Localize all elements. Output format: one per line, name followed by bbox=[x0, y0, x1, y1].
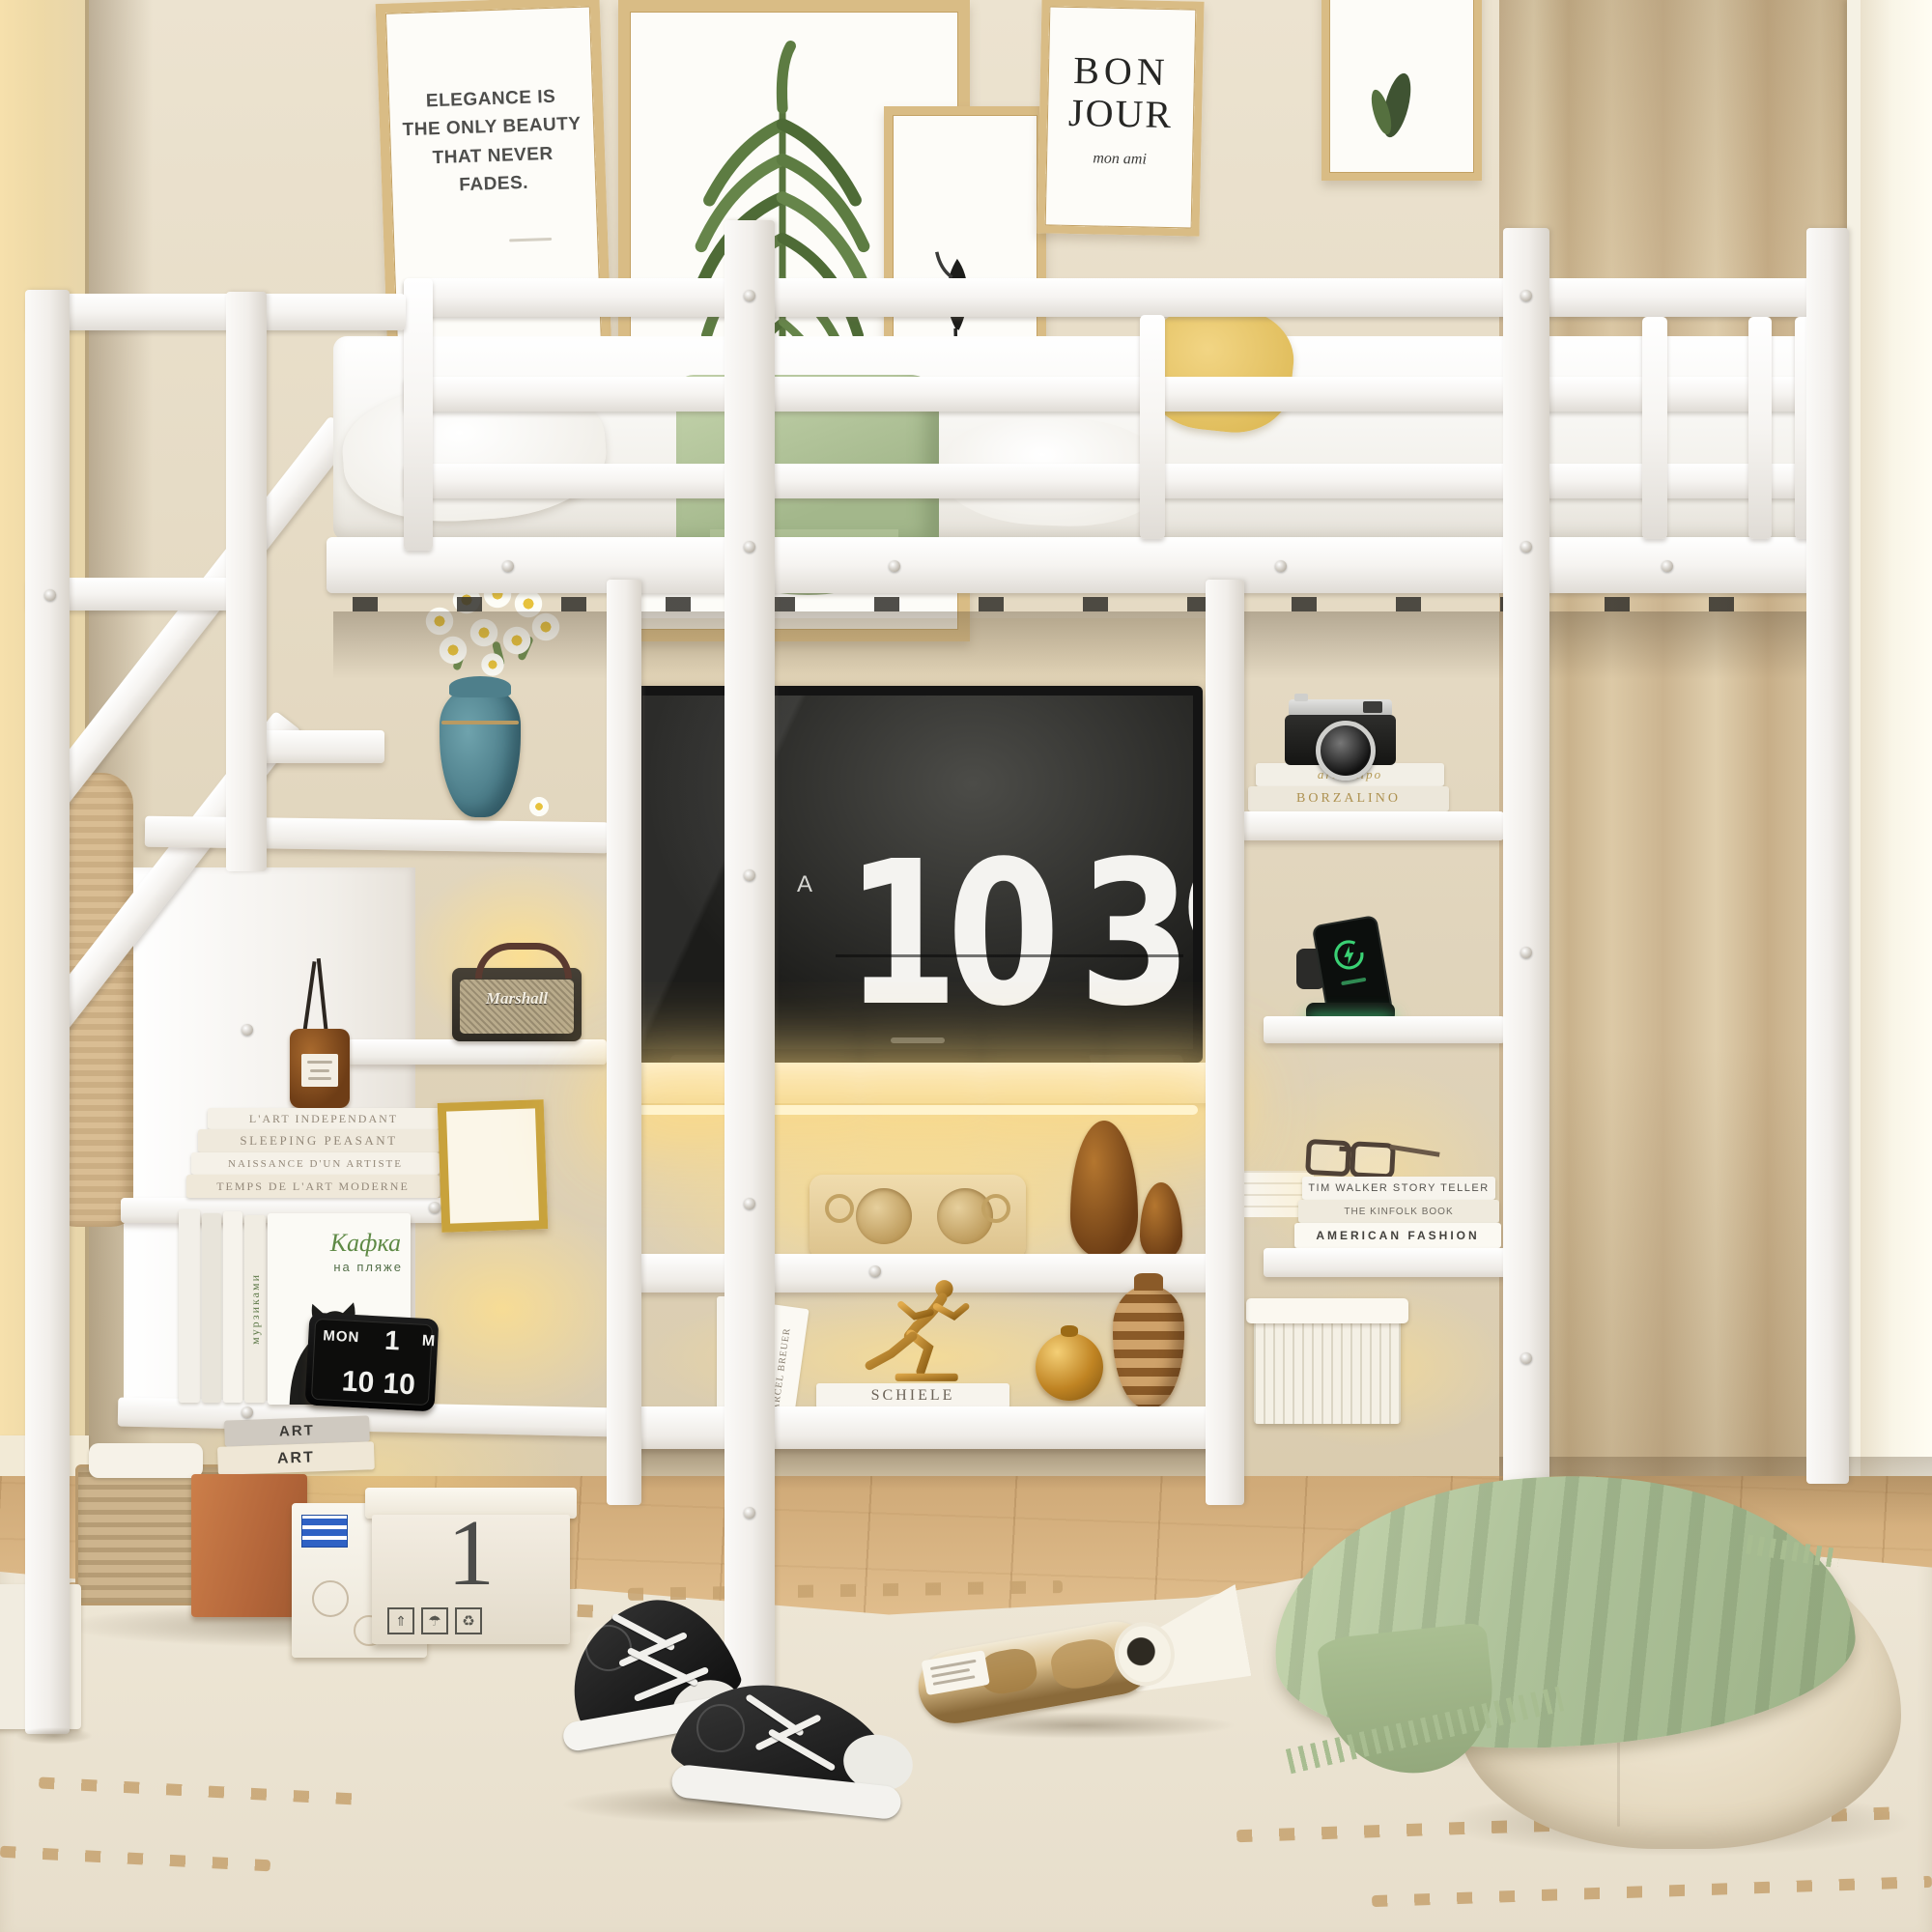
window-frame-strip bbox=[1847, 0, 1861, 1495]
vase-shelf bbox=[145, 816, 609, 854]
bed-post-far-left bbox=[25, 290, 70, 1734]
guard-rail-middle bbox=[404, 377, 1826, 412]
bolt bbox=[241, 1406, 253, 1418]
bonjour-art-frame: BON JOUR mon ami bbox=[1037, 0, 1204, 237]
tv-flip-clock: 10 39 bbox=[845, 819, 1193, 1049]
box-stamp bbox=[312, 1580, 349, 1617]
diffuser-label bbox=[301, 1054, 338, 1087]
speaker-knob bbox=[981, 1194, 1010, 1223]
lens bbox=[1305, 1139, 1351, 1177]
rail-stile bbox=[404, 278, 433, 551]
book-title: SCHIELE bbox=[871, 1387, 955, 1405]
guard-rail-lower bbox=[404, 464, 1826, 498]
camera-viewfinder bbox=[1363, 701, 1382, 713]
under-deck-shadow bbox=[333, 611, 1840, 679]
bolt bbox=[429, 1202, 440, 1213]
schiele-book: SCHIELE bbox=[816, 1383, 1009, 1408]
bonjour-line2: JOUR bbox=[1047, 89, 1195, 137]
speaker-shelf bbox=[348, 1039, 607, 1065]
bolt bbox=[744, 290, 755, 301]
eyeglasses bbox=[1305, 1139, 1423, 1179]
recycle-icon: ♻ bbox=[455, 1607, 482, 1634]
phone-on-charger bbox=[1312, 920, 1389, 1026]
glasses-bridge bbox=[1339, 1147, 1352, 1152]
folded-cloth bbox=[89, 1443, 203, 1478]
art-book: ART bbox=[217, 1441, 375, 1475]
box-number: 1 bbox=[372, 1499, 570, 1607]
flip-clock-screen: MON 1 M 10 10 bbox=[311, 1319, 433, 1406]
book-title: TEMPS DE L'ART MODERNE bbox=[216, 1179, 410, 1194]
orange-storage-box bbox=[191, 1474, 307, 1617]
sneaker-lying bbox=[671, 1683, 913, 1833]
quote-attribution-line bbox=[509, 238, 552, 242]
rail-stile bbox=[1748, 317, 1772, 539]
book-title: THE KINFOLK BOOK bbox=[1344, 1207, 1453, 1217]
under-unit-shadow bbox=[618, 1449, 1217, 1490]
tv-clock-hours: 10 bbox=[845, 819, 1048, 1049]
speaker-driver bbox=[856, 1188, 912, 1244]
bed-post-front-right bbox=[1503, 228, 1549, 1648]
bed-post-far-right bbox=[1806, 228, 1849, 1484]
book-title: L'ART INDEPENDANT bbox=[249, 1112, 398, 1126]
book-spine-row bbox=[223, 1211, 242, 1403]
bolt bbox=[1520, 541, 1532, 553]
speaker-grille: Marshall bbox=[460, 980, 574, 1034]
bed-post-front-left bbox=[724, 220, 775, 1713]
bed-slat-brackets bbox=[353, 597, 1811, 611]
bolt bbox=[241, 1024, 253, 1036]
charging-text-line bbox=[1341, 978, 1366, 985]
quote-text: ELEGANCE IS THE ONLY BEAUTY THAT NEVER F… bbox=[396, 82, 589, 203]
stacked-book: L'ART INDEPENDANT bbox=[208, 1108, 440, 1129]
book-title: AMERICAN FASHION bbox=[1316, 1229, 1479, 1242]
books-shelf bbox=[1264, 1248, 1507, 1277]
art-book-title: ART bbox=[279, 1422, 315, 1439]
guard-rail-top bbox=[404, 278, 1828, 317]
fashion-book: AMERICAN FASHION bbox=[1294, 1223, 1501, 1248]
fashion-book: THE KINFOLK BOOK bbox=[1298, 1200, 1499, 1223]
window-sheer bbox=[1861, 0, 1932, 1495]
corner-leaf-art bbox=[1349, 52, 1445, 149]
bolt bbox=[1662, 560, 1673, 572]
bolt bbox=[744, 1198, 755, 1209]
tv-clock-minutes: 39 bbox=[1078, 819, 1193, 1049]
gold-runner-statue bbox=[858, 1273, 976, 1391]
bottom-shelf-board bbox=[614, 1406, 1221, 1449]
speaker-knob bbox=[825, 1194, 854, 1223]
camera-shelf bbox=[1241, 811, 1504, 840]
bolt bbox=[1520, 1352, 1532, 1364]
flip-clock-minutes: 10 bbox=[383, 1368, 416, 1403]
ribbed-box-lid bbox=[1246, 1298, 1408, 1323]
label-line bbox=[308, 1077, 331, 1080]
bolt bbox=[744, 869, 755, 881]
marshall-speaker: Marshall bbox=[452, 968, 582, 1041]
bonjour-script: mon ami bbox=[1046, 149, 1193, 169]
tv-ampm: A bbox=[797, 871, 812, 898]
camera-dial bbox=[1294, 694, 1308, 701]
label-line bbox=[310, 1069, 329, 1072]
tv-brand-mark bbox=[891, 1037, 945, 1043]
television: A 10 39 bbox=[633, 686, 1203, 1063]
tv-flip-split-line bbox=[836, 954, 1183, 957]
camera-book: BORZALINO bbox=[1248, 786, 1449, 811]
ribbed-storage-box bbox=[1254, 1306, 1401, 1424]
bed-post-mid-right bbox=[1206, 580, 1244, 1505]
book-spine-row bbox=[179, 1209, 200, 1403]
art-book-title: ART bbox=[277, 1449, 315, 1467]
umbrella-icon: ☂ bbox=[421, 1607, 448, 1634]
art-books-stack: ART ART bbox=[216, 1415, 378, 1479]
rail-stile bbox=[1642, 317, 1667, 539]
camera-lens bbox=[1316, 721, 1376, 781]
sphere-neck bbox=[1061, 1325, 1078, 1337]
book-title: NAISSANCE D'UN ARTISTE bbox=[228, 1158, 403, 1170]
flip-clock-day: MON bbox=[323, 1327, 360, 1346]
flip-clock-hours: 10 bbox=[341, 1365, 375, 1400]
charger-shelf bbox=[1264, 1016, 1505, 1043]
book-title: TIM WALKER STORY TELLER bbox=[1308, 1182, 1489, 1194]
stacked-book: SLEEPING PEASANT bbox=[198, 1129, 440, 1152]
bolt bbox=[744, 1507, 755, 1519]
blue-shipping-label bbox=[301, 1515, 348, 1548]
label-line bbox=[933, 1675, 976, 1686]
post-shadow bbox=[15, 1727, 93, 1745]
flip-clock-date: 1 bbox=[384, 1325, 400, 1357]
sneaker-ankle-patch bbox=[696, 1704, 745, 1752]
bolt bbox=[1275, 560, 1287, 572]
book-title: SLEEPING PEASANT bbox=[240, 1133, 397, 1149]
bonjour-line1: BON bbox=[1048, 46, 1196, 95]
diffuser-bottle bbox=[290, 1029, 350, 1108]
vintage-camera bbox=[1285, 699, 1396, 765]
book-spine-row bbox=[202, 1213, 221, 1403]
gold-sphere-vase bbox=[1036, 1333, 1103, 1401]
bedroom-product-photo: ELEGANCE IS THE ONLY BEAUTY THAT NEVER F… bbox=[0, 0, 1932, 1932]
bed-deck-rim bbox=[327, 537, 1845, 593]
cyrillic-book-spine: мурзиками bbox=[244, 1215, 266, 1403]
flip-clock-month-partial: M bbox=[421, 1333, 435, 1351]
bolt bbox=[869, 1265, 881, 1277]
divider-post bbox=[607, 580, 641, 1505]
left-top-rail bbox=[27, 294, 406, 330]
marshall-logo: Marshall bbox=[460, 989, 574, 1009]
vase-neck bbox=[1134, 1273, 1163, 1291]
label-line bbox=[307, 1061, 332, 1064]
bolt bbox=[44, 589, 56, 601]
flip-clock: MON 1 M 10 10 bbox=[305, 1313, 440, 1412]
cat-book-title-script: Кафка bbox=[330, 1229, 401, 1258]
stacked-book: NAISSANCE D'UN ARTISTE bbox=[191, 1152, 440, 1175]
fallen-daisy bbox=[526, 796, 552, 817]
gold-picture-frame bbox=[438, 1099, 549, 1233]
bolt bbox=[889, 560, 900, 572]
vase-twine bbox=[441, 721, 519, 724]
arrows-up-icon: ⇑ bbox=[387, 1607, 414, 1634]
corner-art-frame bbox=[1321, 0, 1482, 181]
numbered-storage-box: 1 ⇑ ☂ ♻ bbox=[372, 1515, 570, 1644]
wooden-speaker bbox=[810, 1175, 1026, 1260]
bolt bbox=[502, 560, 514, 572]
box-icon-row: ⇑ ☂ ♻ bbox=[387, 1607, 482, 1634]
bolt bbox=[1520, 947, 1532, 958]
bolt bbox=[1520, 290, 1532, 301]
stacked-book: TEMPS DE L'ART MODERNE bbox=[186, 1175, 440, 1198]
book-title: BORZALINO bbox=[1296, 791, 1401, 807]
stair-post bbox=[226, 292, 267, 871]
rail-stile bbox=[1140, 315, 1165, 539]
tv-shelf-board bbox=[616, 1063, 1219, 1103]
vase-neck bbox=[449, 676, 511, 697]
bolt bbox=[744, 541, 755, 553]
spine-text: мурзиками bbox=[248, 1273, 263, 1345]
fashion-book: TIM WALKER STORY TELLER bbox=[1302, 1177, 1495, 1200]
charging-ring-icon bbox=[1329, 935, 1370, 976]
